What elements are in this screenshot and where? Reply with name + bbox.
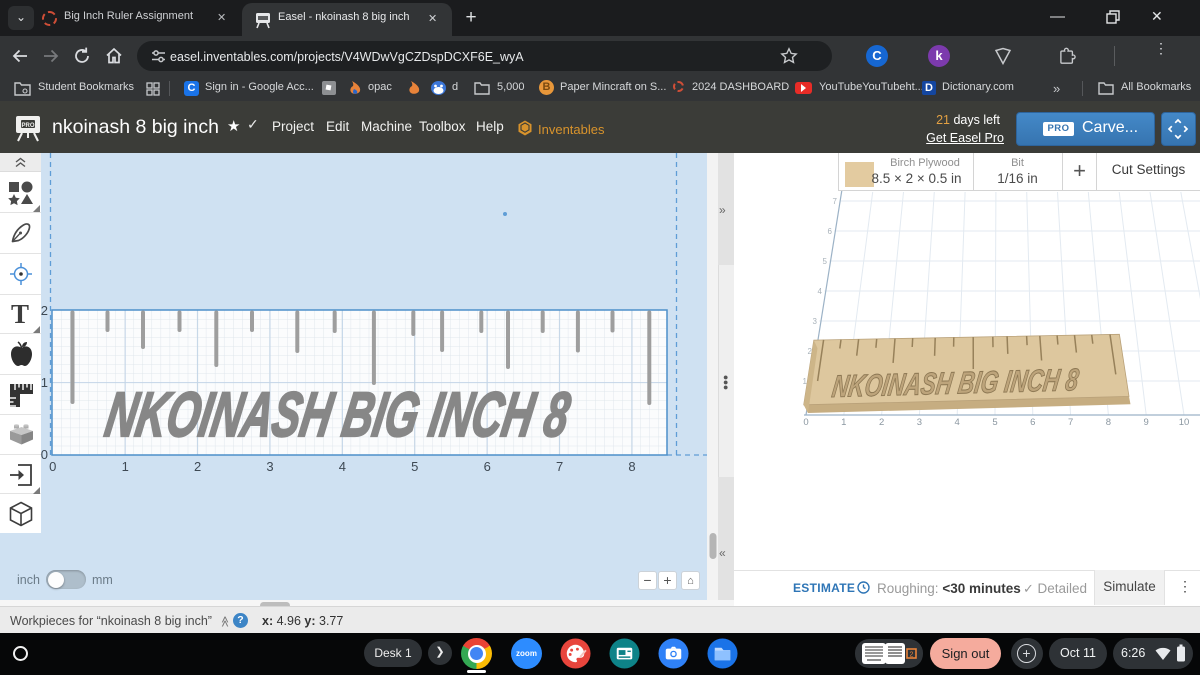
svg-text:2: 2 (194, 459, 201, 474)
svg-text:8: 8 (628, 459, 635, 474)
svg-text:3: 3 (266, 459, 273, 474)
svg-text:6: 6 (828, 227, 833, 236)
svg-text:NKOINASH BIG INCH 8: NKOINASH BIG INCH 8 (101, 380, 576, 449)
svg-text:5: 5 (411, 459, 418, 474)
svg-text:2: 2 (41, 303, 48, 318)
svg-text:0: 0 (41, 447, 48, 462)
svg-text:9: 9 (1144, 417, 1149, 428)
svg-text:1: 1 (41, 375, 48, 390)
svg-text:2: 2 (879, 417, 884, 428)
svg-text:1: 1 (122, 459, 129, 474)
svg-text:7: 7 (556, 459, 563, 474)
svg-text:7: 7 (1068, 417, 1073, 428)
svg-text:3: 3 (917, 417, 922, 428)
svg-text:0: 0 (803, 417, 808, 428)
svg-text:6: 6 (1030, 417, 1035, 428)
svg-text:8: 8 (1106, 417, 1111, 428)
svg-text:10: 10 (1179, 417, 1190, 428)
svg-text:7: 7 (833, 197, 838, 206)
svg-text:1: 1 (841, 417, 846, 428)
svg-text:4: 4 (955, 417, 960, 428)
svg-text:5: 5 (823, 257, 828, 266)
svg-text:6: 6 (484, 459, 491, 474)
svg-text:5: 5 (992, 417, 997, 428)
svg-text:PRO: PRO (21, 123, 34, 129)
svg-text:0: 0 (49, 459, 56, 474)
svg-text:4: 4 (339, 459, 346, 474)
svg-text:3: 3 (813, 317, 818, 326)
svg-text:4: 4 (818, 287, 823, 296)
svg-text:NKOINASH BIG INCH 8: NKOINASH BIG INCH 8 (830, 362, 1082, 404)
svg-text:2: 2 (910, 652, 914, 659)
